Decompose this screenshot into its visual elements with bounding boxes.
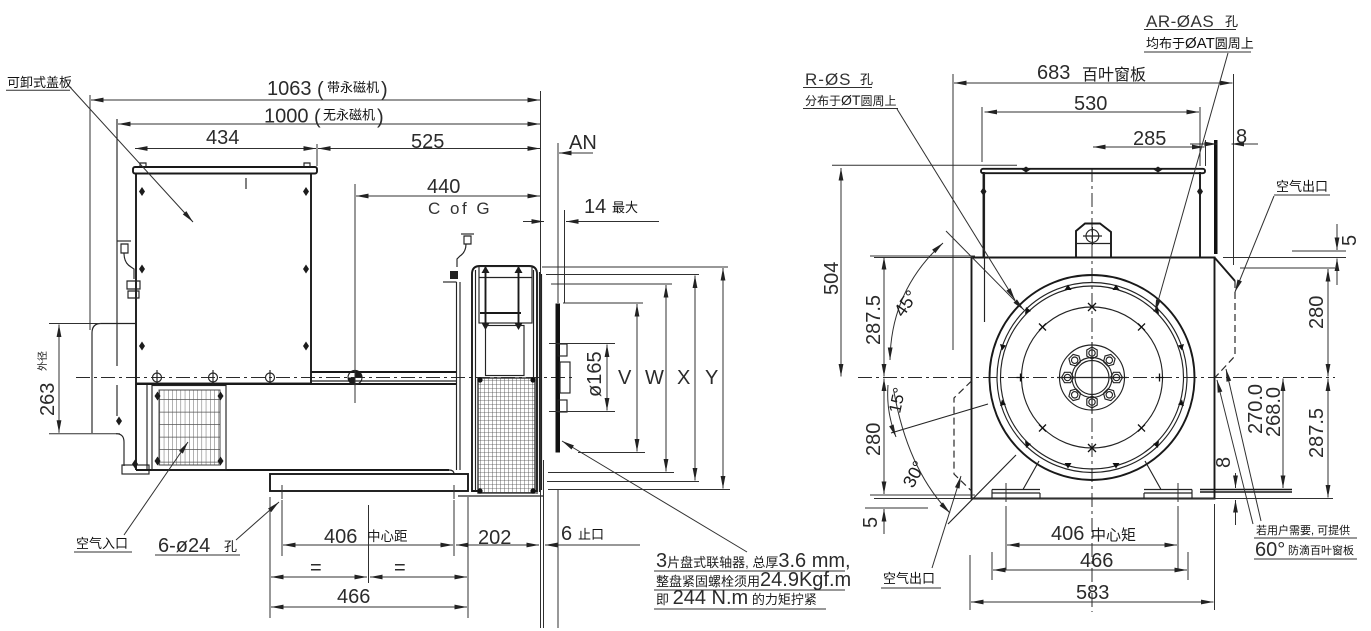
svg-text:6: 6 (561, 523, 572, 545)
svg-text:AR-ØAS: AR-ØAS (1146, 12, 1214, 31)
svg-text:1063: 1063 (267, 78, 312, 100)
svg-text:280: 280 (863, 423, 885, 456)
svg-text:6-ø24: 6-ø24 (158, 535, 210, 557)
svg-text:最大: 最大 (612, 200, 638, 215)
svg-text:287.5: 287.5 (863, 295, 885, 345)
svg-text:R-ØS: R-ØS (805, 70, 852, 89)
svg-text:406: 406 (324, 526, 357, 548)
svg-text:60°: 60° (1255, 539, 1285, 561)
svg-text:分布于ØT圆周上: 分布于ØT圆周上 (805, 92, 896, 108)
svg-text:263: 263 (37, 383, 59, 416)
svg-text:583: 583 (1076, 582, 1109, 604)
svg-text:均布于ØAT圆周上: 均布于ØAT圆周上 (1146, 35, 1254, 52)
svg-text:(: ( (317, 79, 324, 101)
svg-text:504: 504 (821, 262, 843, 295)
svg-text:止口: 止口 (578, 527, 604, 542)
svg-text:202: 202 (478, 527, 511, 549)
svg-text:5: 5 (1339, 235, 1361, 246)
svg-text:Y: Y (705, 367, 718, 389)
svg-text:空气入口: 空气入口 (76, 536, 128, 551)
svg-text:V: V (618, 367, 632, 389)
svg-text:中心距: 中心距 (367, 529, 408, 544)
svg-text:可卸式盖板: 可卸式盖板 (7, 75, 72, 90)
svg-text:W: W (645, 367, 664, 389)
svg-text:525: 525 (411, 131, 444, 153)
svg-text:285: 285 (1133, 128, 1166, 150)
svg-text:8: 8 (1213, 457, 1235, 468)
svg-text:14: 14 (584, 196, 606, 218)
svg-text:280: 280 (1306, 296, 1328, 329)
svg-text:C of G: C of G (428, 199, 492, 218)
svg-text:683: 683 (1037, 62, 1070, 84)
svg-text:=: = (394, 557, 406, 579)
svg-text:带永磁机: 带永磁机 (327, 80, 379, 95)
svg-text:外径: 外径 (36, 351, 49, 371)
svg-text:466: 466 (1080, 550, 1113, 572)
svg-text:=: = (310, 557, 322, 579)
svg-text:孔: 孔 (860, 72, 873, 87)
svg-text:AN: AN (569, 132, 597, 154)
svg-text:268.0: 268.0 (1263, 387, 1285, 437)
svg-text:空气出口: 空气出口 (1276, 179, 1328, 194)
svg-text:406: 406 (1051, 523, 1084, 545)
svg-text:百叶窗板: 百叶窗板 (1082, 66, 1146, 84)
svg-text:466: 466 (337, 586, 370, 608)
svg-text:孔: 孔 (1225, 14, 1238, 29)
svg-text:若用户需要, 可提供: 若用户需要, 可提供 (1256, 523, 1350, 537)
svg-text:5: 5 (860, 517, 882, 528)
svg-text:孔: 孔 (224, 539, 237, 554)
svg-text:): ) (381, 79, 388, 101)
svg-text:1000: 1000 (264, 106, 309, 128)
svg-text:中心矩: 中心矩 (1091, 527, 1136, 544)
svg-text:X: X (677, 367, 690, 389)
svg-text:287.5: 287.5 (1306, 408, 1328, 458)
svg-text:ø165: ø165 (584, 351, 606, 397)
svg-text:防滴百叶窗板: 防滴百叶窗板 (1288, 543, 1354, 557)
svg-text:434: 434 (206, 127, 239, 149)
svg-text:530: 530 (1074, 93, 1107, 115)
svg-text:空气出口: 空气出口 (883, 571, 935, 586)
svg-text:8: 8 (1236, 126, 1247, 148)
svg-text:(: ( (314, 107, 321, 129)
svg-text:440: 440 (427, 176, 460, 198)
svg-text:): ) (377, 107, 384, 129)
svg-text:无永磁机: 无永磁机 (323, 108, 375, 123)
